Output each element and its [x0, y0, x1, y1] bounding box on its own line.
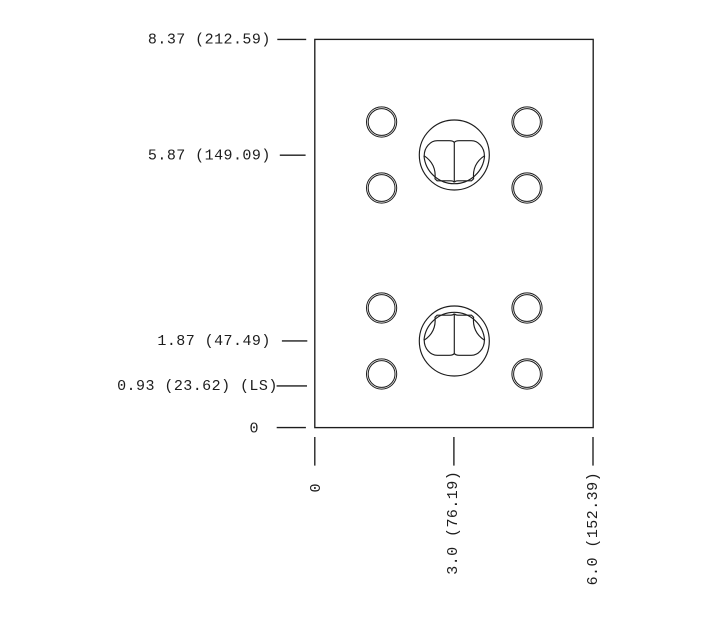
svg-text:6.0 (152.39): 6.0 (152.39) [585, 472, 602, 585]
svg-text:0: 0 [308, 483, 325, 492]
svg-text:8.37 (212.59): 8.37 (212.59) [148, 32, 271, 49]
svg-text:0.93 (23.62) (LS): 0.93 (23.62) (LS) [117, 378, 278, 395]
svg-text:1.87 (47.49): 1.87 (47.49) [157, 333, 270, 350]
svg-text:3.0 (76.19): 3.0 (76.19) [445, 471, 462, 575]
svg-text:0: 0 [249, 421, 258, 438]
svg-text:5.87 (149.09): 5.87 (149.09) [148, 147, 271, 164]
